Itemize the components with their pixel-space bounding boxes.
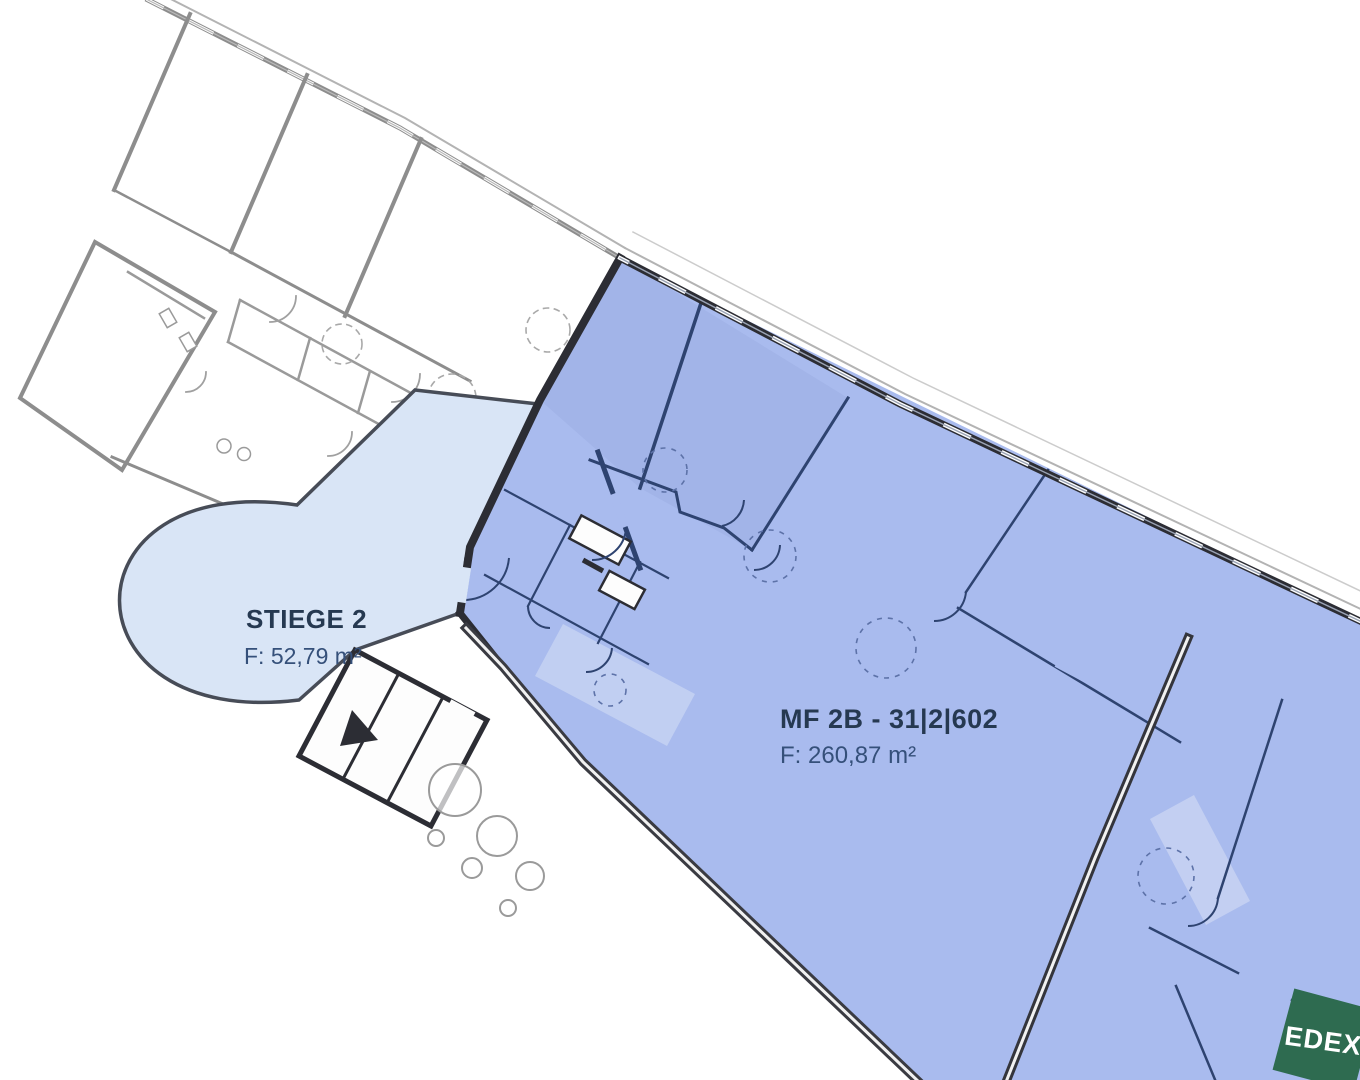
opening-scallop-mark	[526, 308, 570, 352]
tree-icon	[477, 816, 517, 856]
floor-plan-page: STIEGE 2 F: 52,79 m² MF 2B - 31|2|602 F:…	[0, 0, 1360, 1080]
tree-icon	[500, 900, 516, 916]
unit-area-label: F: 260,87 m²	[780, 742, 916, 769]
neighbor-left-room	[20, 242, 215, 470]
neighbor-corridor-wall	[114, 190, 231, 252]
door-swing-arc	[328, 432, 352, 456]
bath-fixture-icon	[217, 439, 231, 453]
tree-icon	[428, 830, 444, 846]
floor-plan: STIEGE 2 F: 52,79 m² MF 2B - 31|2|602 F:…	[0, 0, 1360, 1080]
opening-scallop-mark	[322, 324, 362, 364]
neighbor-partition-wall	[345, 139, 421, 316]
entry-door-gap	[462, 572, 466, 598]
neighbor-bath-wall	[358, 371, 370, 413]
door-swing-arc	[186, 372, 206, 392]
unit-label: MF 2B - 31|2|602	[780, 704, 998, 734]
neighbor-partition-wall	[114, 14, 190, 190]
tree-icon	[516, 862, 544, 890]
neighbor-bath-wall	[228, 300, 240, 342]
neighbor-connector-wall	[112, 457, 235, 509]
tree-icon	[429, 764, 481, 816]
neighbor-facade-wall	[148, 0, 620, 258]
neighbor-bath-wall	[240, 300, 420, 398]
neighbor-partition-wall	[231, 75, 307, 252]
bath-fixture-icon	[238, 448, 251, 461]
tree-icon	[462, 858, 482, 878]
stairwell-label: STIEGE 2	[246, 604, 367, 634]
neighbor-bath-wall	[298, 338, 310, 380]
landscaping	[428, 764, 544, 916]
stairwell-area-label: F: 52,79 m²	[244, 643, 362, 669]
